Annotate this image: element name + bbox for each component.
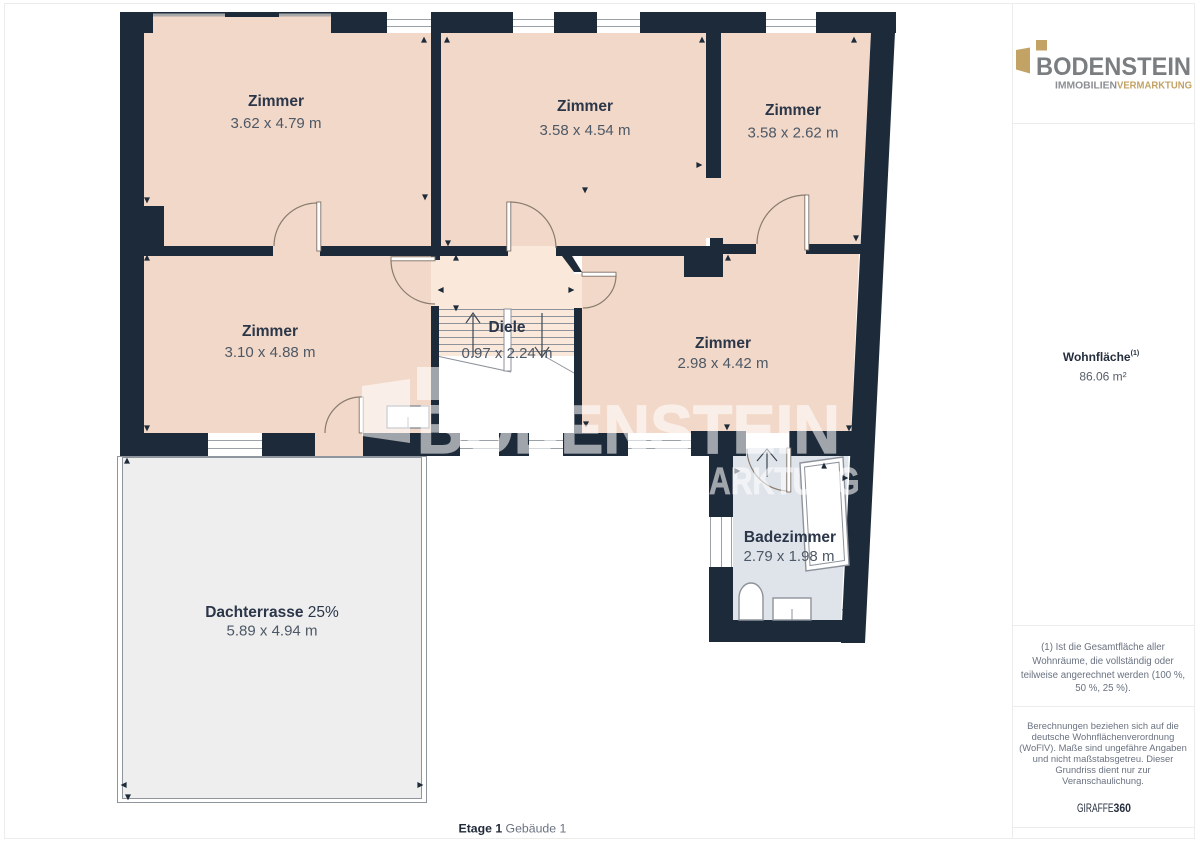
svg-text:Zimmer: Zimmer bbox=[557, 98, 613, 115]
svg-text:Zimmer: Zimmer bbox=[695, 335, 751, 352]
svg-text:(WoFlV). Maße sind ungefähre A: (WoFlV). Maße sind ungefähre Angaben bbox=[1019, 742, 1187, 753]
svg-text:Gebäude 1: Gebäude 1 bbox=[506, 822, 567, 836]
svg-text:Veranschaulichung.: Veranschaulichung. bbox=[1062, 775, 1144, 786]
svg-text:Wohnräume, die vollständig ode: Wohnräume, die vollständig oder bbox=[1032, 656, 1174, 667]
svg-text:86.06 m²: 86.06 m² bbox=[1079, 370, 1126, 384]
svg-text:GIRAFFE360: GIRAFFE360 bbox=[1077, 801, 1131, 815]
svg-text:BODENSTEIN: BODENSTEIN bbox=[1036, 53, 1191, 81]
svg-text:Etage 1: Etage 1 bbox=[459, 822, 503, 836]
svg-text:IMMOBILIENVERMARKTUNG: IMMOBILIENVERMARKTUNG bbox=[1055, 80, 1192, 92]
svg-text:2.98 x 4.42 m: 2.98 x 4.42 m bbox=[678, 355, 769, 372]
svg-text:Wohnfläche(1): Wohnfläche(1) bbox=[1063, 350, 1139, 364]
svg-text:teilweise angerechnet werden (: teilweise angerechnet werden (100 %, bbox=[1021, 670, 1185, 681]
svg-text:IMMOBILIENVERMARKTUNG: IMMOBILIENVERMARKTUNG bbox=[442, 461, 860, 503]
svg-text:3.58 x 2.62 m: 3.58 x 2.62 m bbox=[748, 125, 839, 142]
svg-text:3.62 x 4.79 m: 3.62 x 4.79 m bbox=[231, 115, 322, 132]
svg-text:0.97 x 2.24 m: 0.97 x 2.24 m bbox=[462, 345, 553, 362]
svg-text:Berechnungen beziehen sich auf: Berechnungen beziehen sich auf die bbox=[1027, 720, 1179, 731]
svg-text:Dachterrasse 25%: Dachterrasse 25% bbox=[205, 604, 339, 621]
svg-text:Zimmer: Zimmer bbox=[248, 93, 304, 110]
svg-text:3.58 x 4.54 m: 3.58 x 4.54 m bbox=[540, 122, 631, 139]
svg-text:50 %, 25 %).: 50 %, 25 %). bbox=[1075, 683, 1130, 694]
svg-text:Zimmer: Zimmer bbox=[765, 102, 821, 119]
svg-text:5.89 x 4.94 m: 5.89 x 4.94 m bbox=[227, 623, 318, 640]
svg-text:und nicht maßstabsgetreu. Dies: und nicht maßstabsgetreu. Dieser bbox=[1033, 753, 1174, 764]
svg-text:(1) Ist die Gesamtfläche aller: (1) Ist die Gesamtfläche aller bbox=[1041, 642, 1166, 653]
svg-text:Badezimmer: Badezimmer bbox=[744, 529, 836, 546]
svg-text:Grundriss dient nur zur: Grundriss dient nur zur bbox=[1055, 764, 1150, 775]
svg-text:Zimmer: Zimmer bbox=[242, 323, 298, 340]
svg-text:deutsche Wohnflächenverordnung: deutsche Wohnflächenverordnung bbox=[1032, 731, 1175, 742]
svg-text:BODENSTEIN: BODENSTEIN bbox=[417, 391, 840, 468]
svg-text:3.10 x 4.88 m: 3.10 x 4.88 m bbox=[225, 344, 316, 361]
svg-text:2.79 x 1.98 m: 2.79 x 1.98 m bbox=[744, 548, 835, 565]
svg-text:Diele: Diele bbox=[488, 319, 525, 336]
